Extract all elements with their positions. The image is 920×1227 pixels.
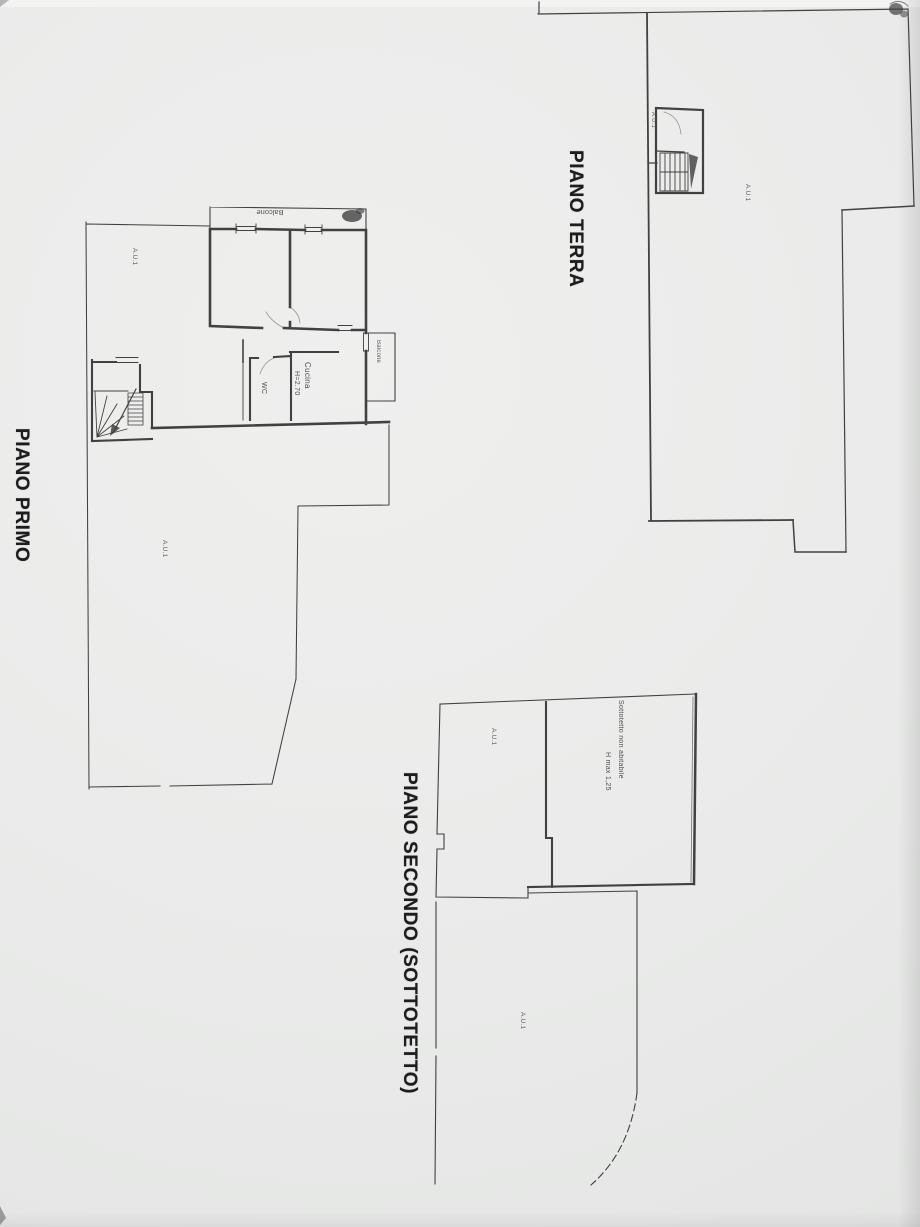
floor-title-piano-primo: PIANO PRIMO — [10, 428, 32, 562]
piano-secondo-outline — [435, 694, 695, 1185]
unit-label-terra-stairwell: A.U.1 — [650, 112, 656, 128]
unit-label-secondo-lower: A.U.1 — [519, 1012, 526, 1029]
room-label-sottotetto-height: H max 1,25 — [604, 752, 611, 791]
stair-arrow-icon — [689, 154, 698, 189]
ink-blob-balcony — [342, 208, 365, 222]
piano-primo-lot-boundary — [86, 222, 389, 789]
scanned-floorplan-page: PIANO TERRA A.U.1 A.U.1 PIANO PRIMO A.U.… — [0, 0, 920, 1227]
piano-terra-outline — [538, 2, 914, 552]
room-label-balcone-right: Balcone — [375, 340, 381, 363]
unit-label-primo-courtyard: A.U.1 — [161, 540, 168, 557]
unit-label-secondo-left: A.U.1 — [490, 728, 497, 745]
floor-title-piano-terra: PIANO TERRA — [564, 150, 586, 288]
unit-label-terra-main-area: A.U.1 — [744, 184, 751, 201]
room-label-balcone-top: Balcone — [238, 208, 302, 217]
room-label-wc: WC — [260, 382, 267, 394]
room-label-sottotetto: Sottotetto non abitabile — [617, 700, 624, 779]
piano-secondo-room-walls — [528, 694, 696, 887]
floor-title-piano-secondo: PIANO SECONDO (SOTTOTETTO) — [398, 772, 420, 1094]
piano-primo-stairwell — [92, 360, 152, 441]
floorplan-drawing — [0, 0, 920, 1227]
room-label-cucina-height: H=2.70 — [293, 371, 300, 396]
piano-terra-stairwell — [649, 108, 703, 193]
unit-label-primo-room: A.U.1 — [131, 248, 138, 265]
scan-corner-marks — [0, 0, 9, 1225]
piano-primo-walls — [152, 229, 389, 428]
room-label-cucina: Cucina — [303, 362, 312, 389]
